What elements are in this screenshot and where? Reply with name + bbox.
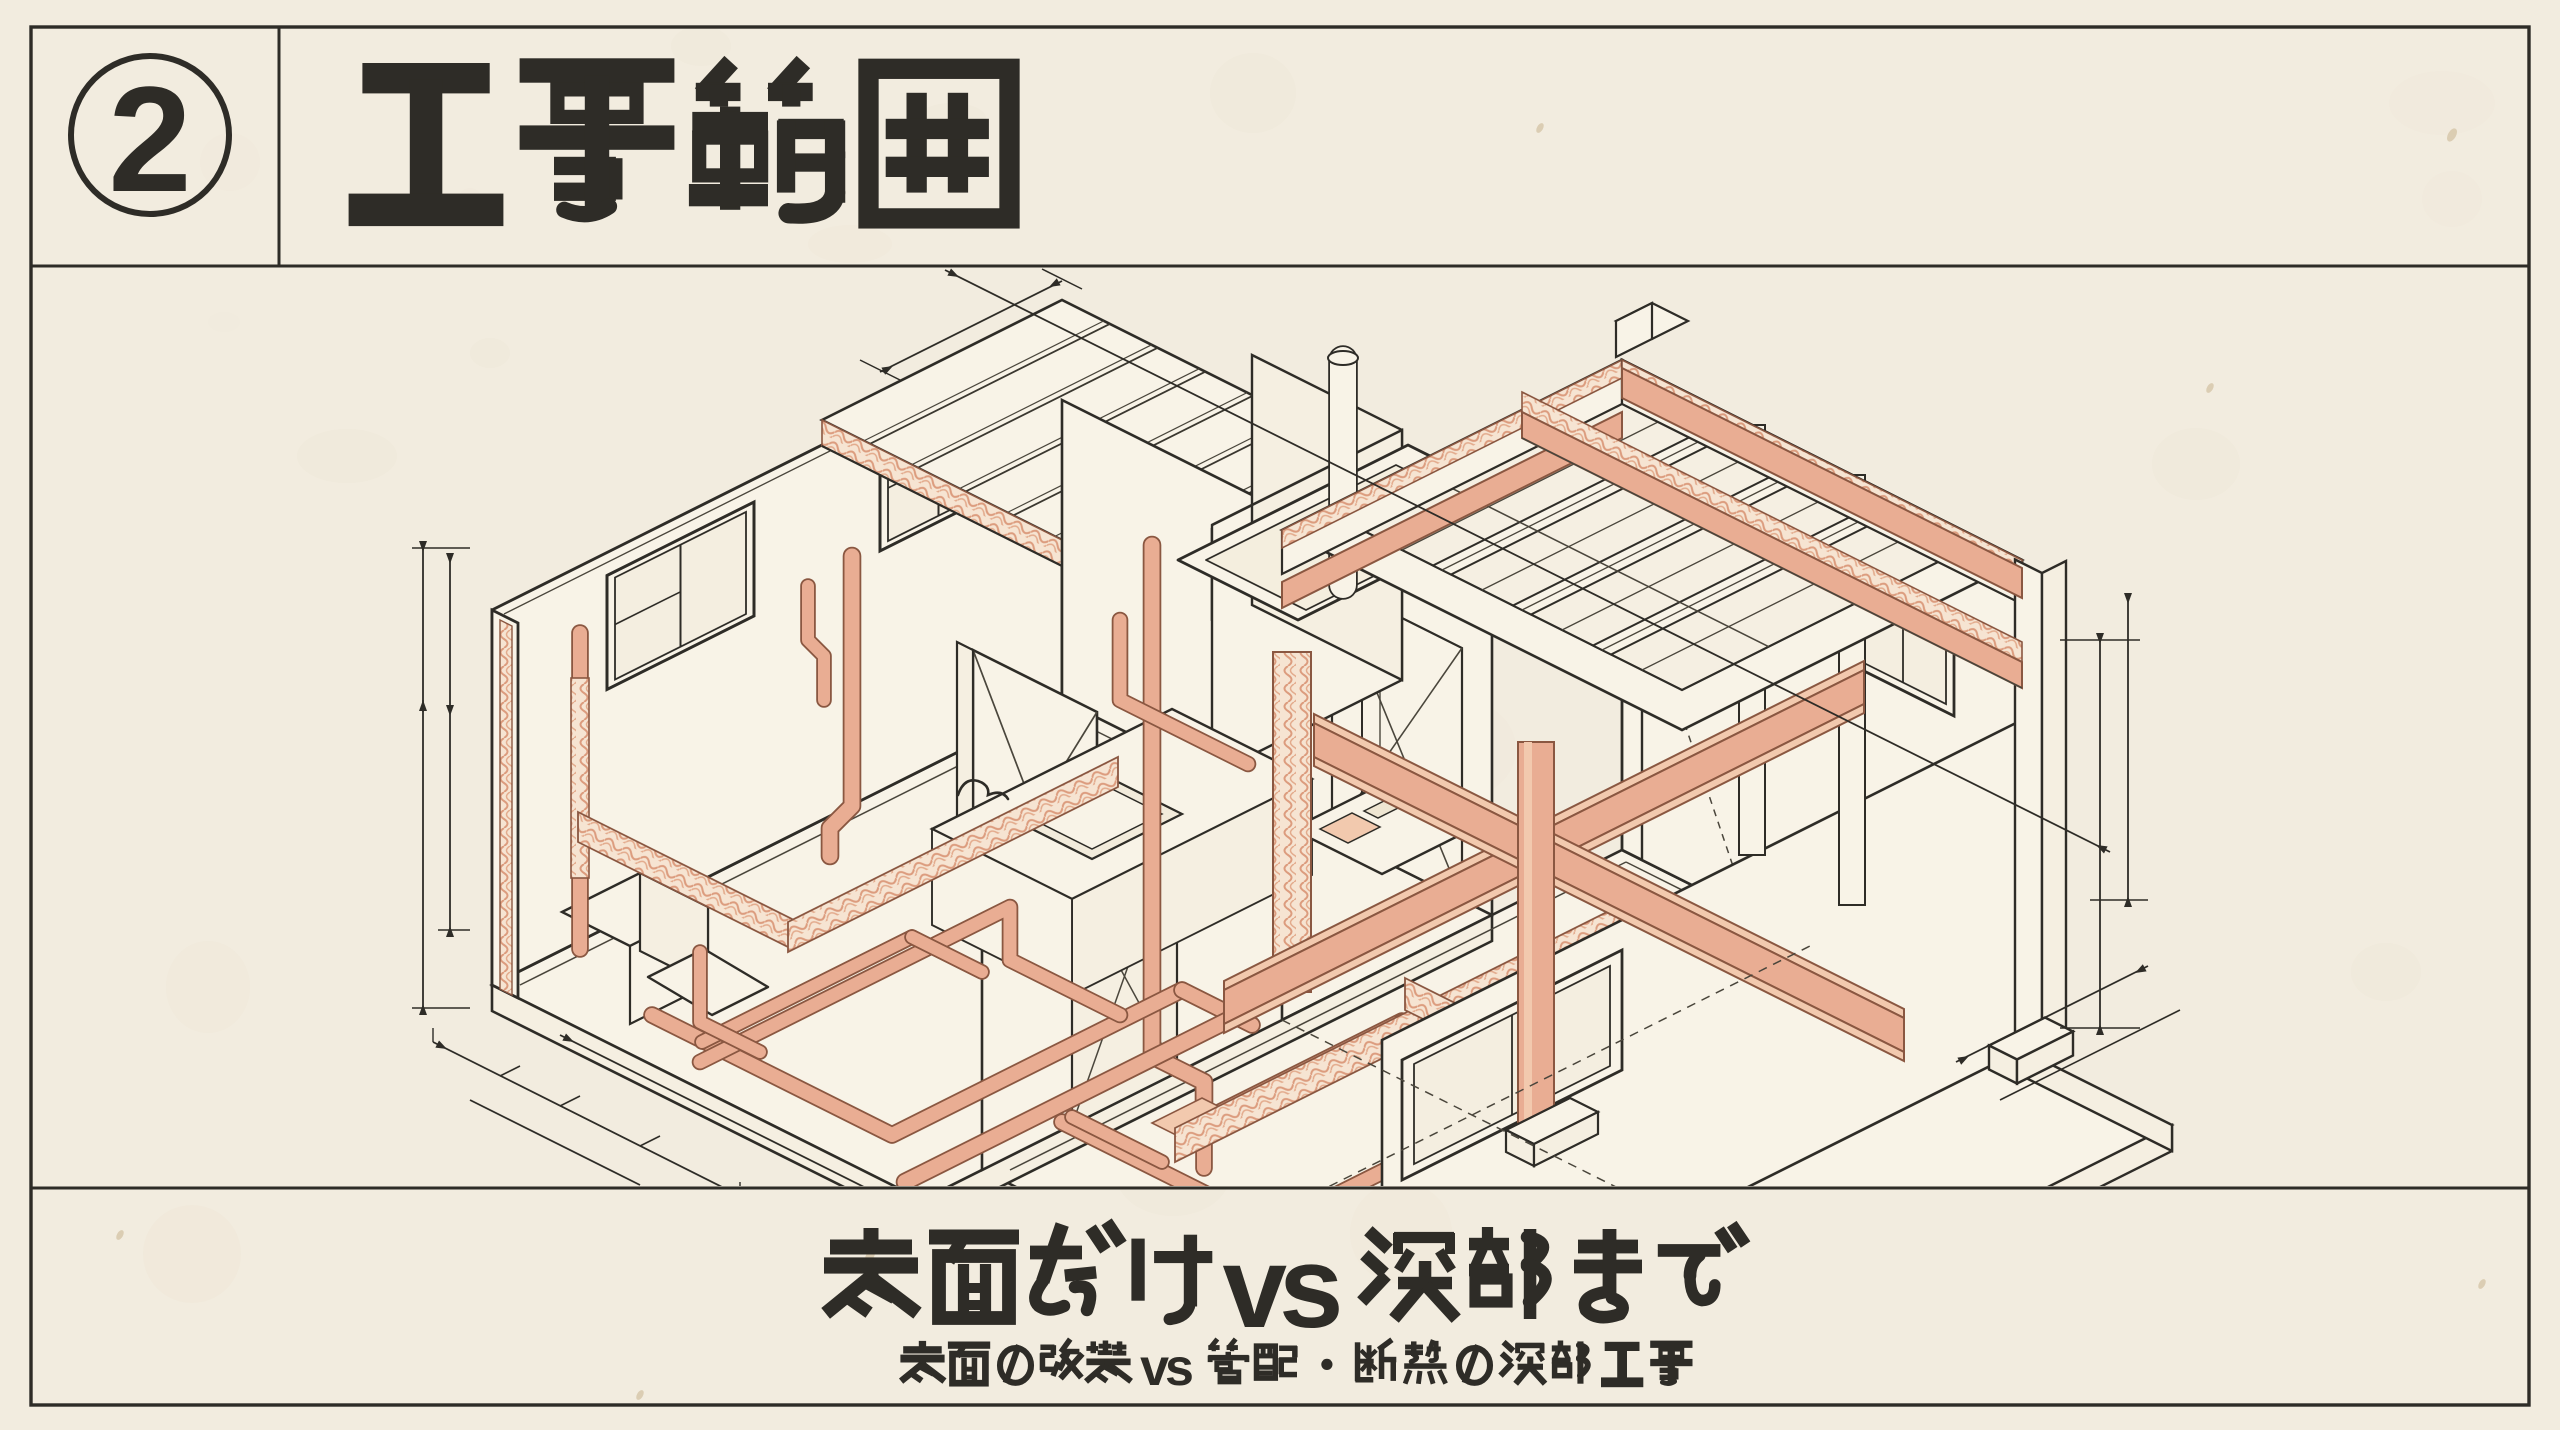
svg-text:2: 2 <box>108 55 191 223</box>
svg-text:vs: vs <box>1140 1339 1192 1397</box>
svg-text:vs: vs <box>1222 1222 1339 1352</box>
